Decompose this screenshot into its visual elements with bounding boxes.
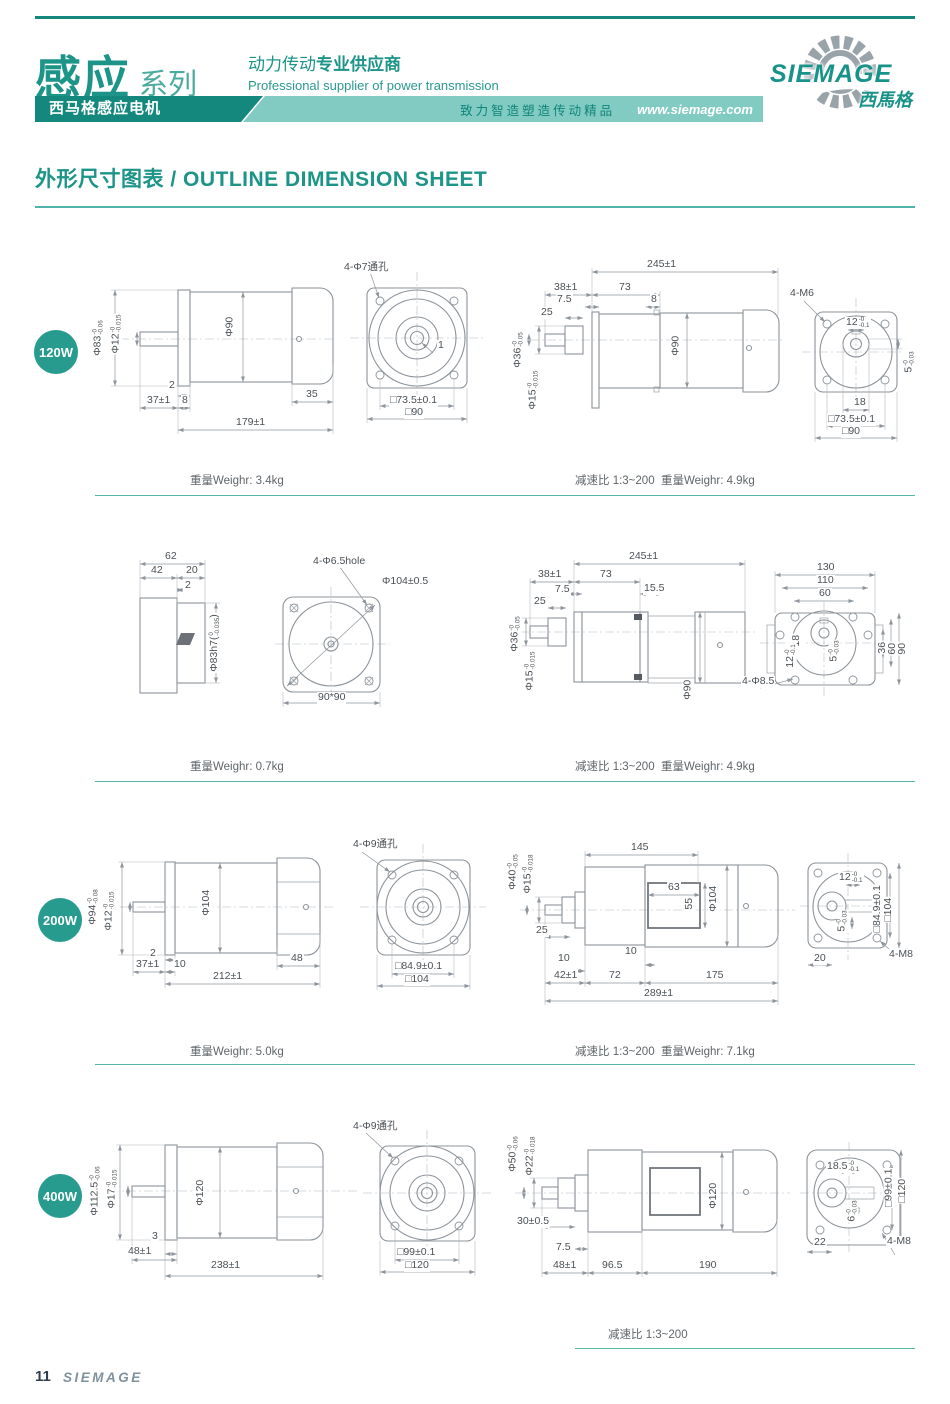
footer-brand: SIEMAGE (63, 1370, 143, 1385)
row-separator (95, 1064, 915, 1065)
ratio-caption: 减速比 1:3~200 (608, 1326, 688, 1342)
gearmotor-side-view-drawing (500, 1115, 800, 1310)
dim-label: 10 (173, 959, 187, 971)
tap-hole-label: 4-Φ8.5 (741, 676, 775, 688)
row-separator (575, 1348, 915, 1349)
dim-label: 289±1 (643, 988, 674, 1000)
thru-hole-label: 4-Φ9通孔 (352, 1121, 399, 1133)
dim-label: 37±1 (135, 959, 160, 971)
tap-hole-label: 4-M6 (789, 288, 815, 300)
dim-label: □99±0.1 (883, 1168, 895, 1208)
logo-cn: 西馬格 (858, 86, 912, 112)
power-badge-200w: 200W (38, 898, 82, 942)
product-line-bar: 西马格感应电机 (35, 96, 263, 122)
power-badge-120w: 120W (34, 330, 78, 374)
dim-label: 1 (437, 340, 445, 352)
flange-side-view-drawing (125, 548, 240, 698)
dim-label: 90*90 (317, 692, 346, 704)
dim-label: Φ112.5-0-0.06 (90, 1165, 102, 1216)
dim-label: Φ120 (708, 1182, 720, 1210)
dim-label: 175 (705, 970, 725, 982)
dim-label: 25 (535, 925, 549, 937)
dim-label: □104 (883, 897, 895, 923)
motor-front-view-drawing (340, 260, 505, 450)
spec-row-120w: 120W Φ83-0-0.06 Φ12-0-0.015 Φ90 2 37±1 8 (0, 235, 950, 500)
tagline-text: 致力智造塑造传动精品 (460, 100, 615, 119)
dim-label: 2 (168, 380, 176, 392)
dim-label: 12-0-0.1 (785, 643, 797, 669)
dim-label: Φ12-0-0.015 (103, 891, 115, 932)
company-logo: SIEMAGE 西馬格 (768, 28, 938, 120)
thru-hole-label: 4-Φ9通孔 (352, 839, 399, 851)
dim-label: 12-0-0.1 (838, 872, 864, 884)
dim-label: Φ104 (708, 885, 720, 913)
dim-label: □90 (841, 426, 861, 438)
row-separator (95, 495, 915, 496)
dim-label: Φ120 (195, 1179, 207, 1207)
dim-label: 38±1 (553, 282, 578, 294)
dim-label: 10 (557, 953, 571, 965)
dim-label: Φ15-0-0.018 (522, 854, 534, 895)
header-rule (35, 16, 915, 19)
dim-label: □84.9±0.1 (394, 961, 443, 973)
ratio-weight-caption: 减速比 1:3~200 重量Weighr: 4.9kg (575, 758, 755, 774)
dim-label: □104 (404, 974, 430, 986)
page-title: 外形尺寸图表 / OUTLINE DIMENSION SHEET (35, 163, 487, 193)
dim-label: 7.5 (556, 294, 573, 306)
spec-row-400w: 400W Φ112.5-0-0.06 Φ17-0-0.015 Φ120 3 48… (0, 1070, 950, 1360)
dim-label: Φ15-0-0.015 (527, 370, 539, 411)
dim-label: 38±1 (537, 569, 562, 581)
dim-label: 2 (184, 580, 192, 592)
row-separator (95, 781, 915, 782)
dim-label: 5-0-0.03 (904, 350, 916, 373)
dim-label: 96.5 (601, 1260, 623, 1272)
dim-label: 42 (150, 565, 164, 577)
gearhead-front-view-drawing (755, 552, 950, 712)
slogan-cn-bold: 专业供应商 (316, 55, 401, 74)
dim-label: 7.5 (555, 1242, 572, 1254)
dim-label: 8 (650, 294, 658, 306)
dim-label: 5-0-0.03 (829, 639, 841, 662)
dim-label: 35 (305, 389, 319, 401)
dim-label: Φ90 (682, 679, 694, 701)
dim-label: Φ90 (670, 335, 682, 357)
tagline-bar: 致力智造塑造传动精品 www.siemage.com (243, 96, 763, 122)
slogan-en: Professional supplier of power transmiss… (248, 78, 499, 93)
dim-label: 60 (818, 588, 832, 600)
dim-label: 20 (185, 565, 199, 577)
slogan-cn: 动力传动 (248, 55, 316, 74)
weight-caption: 重量Weighr: 0.7kg (190, 758, 284, 774)
dim-label: □90 (404, 407, 424, 419)
tap-hole-label: 4-M8 (886, 1236, 912, 1248)
corner-hole-icon (290, 677, 298, 685)
dim-label: Φ40-0-0.05 (508, 853, 520, 890)
dim-label: 7.5 (554, 584, 571, 596)
header-slogan: 动力传动专业供应商 Professional supplier of power… (248, 50, 499, 93)
dim-label: 130 (816, 562, 836, 574)
dim-label: □120 (404, 1260, 430, 1272)
dim-label: 25 (533, 596, 547, 608)
dim-label: 90 (897, 642, 909, 656)
thru-hole-label: 4-Φ7通孔 (343, 262, 390, 274)
dim-label: 18 (853, 397, 867, 409)
dim-label: 8 (181, 395, 189, 407)
catalog-page: 感应系列 动力传动专业供应商 Professional supplier of … (0, 0, 950, 1404)
motor-side-view-drawing (95, 265, 340, 440)
dim-label: 62 (164, 551, 178, 563)
power-badge-400w: 400W (38, 1174, 82, 1218)
dim-label: Φ83-0-0.06 (93, 319, 105, 356)
dim-label: Φ50-0-0.06 (508, 1135, 520, 1172)
dim-label: 12-0-0.1 (845, 317, 871, 329)
corner-hole-icon (365, 677, 373, 685)
dim-label: □99±0.1 (396, 1247, 436, 1259)
ratio-weight-caption: 减速比 1:3~200 重量Weighr: 4.9kg (575, 472, 755, 488)
dim-label: Φ36-0-0.05 (513, 331, 525, 368)
gearhead-front-view-drawing (800, 1140, 950, 1285)
dim-label: 73 (599, 569, 613, 581)
website-link[interactable]: www.siemage.com (637, 102, 753, 117)
dim-label: 6-0-0.03 (847, 1199, 859, 1222)
weight-caption: 重量Weighr: 5.0kg (190, 1043, 284, 1059)
dim-label: 212±1 (212, 971, 243, 983)
dim-label: 18.5-0-0.1 (826, 1161, 860, 1173)
dim-label: Φ94-0-0.08 (88, 888, 100, 925)
dim-label: 10 (624, 946, 638, 958)
dim-label: □73.5±0.1 (827, 414, 876, 426)
dim-label: Φ104±0.5 (381, 576, 429, 588)
title-rule (35, 206, 915, 208)
corner-hole-icon (290, 604, 298, 612)
dim-label: 179±1 (235, 417, 266, 429)
dim-label: 42±1 (553, 970, 578, 982)
dim-label: Φ17-0-0.015 (106, 1169, 118, 1210)
dim-label: 5-0-0.03 (837, 909, 849, 932)
tap-hole-label: 4-M8 (888, 949, 914, 961)
dim-label: Φ15-0-0.015 (524, 651, 536, 692)
dim-label: 145 (630, 842, 650, 854)
thru-hole-label: 4-Φ6.5hole (312, 556, 366, 568)
dim-label: Φ36-0-0.05 (510, 615, 522, 652)
dim-label: Φ83h7(0-0.035) (209, 613, 221, 673)
dim-label: 245±1 (628, 551, 659, 563)
dim-label: 55 (684, 897, 696, 911)
dim-label: 63 (667, 882, 681, 894)
dim-label: 110 (816, 575, 835, 587)
dim-label: Φ22-0-0.018 (524, 1136, 536, 1177)
spec-row-flange: 62 42 20 2 Φ83h7(0-0.035) 4-Φ6.5hole Φ10… (0, 500, 950, 790)
dim-label: 190 (698, 1260, 718, 1272)
dim-label: 25 (540, 307, 554, 319)
weight-caption: 重量Weighr: 3.4kg (190, 472, 284, 488)
dim-label: 22 (813, 1237, 827, 1249)
dim-label: 72 (608, 970, 622, 982)
dim-label: 37±1 (146, 395, 171, 407)
dim-label: □120 (897, 1178, 909, 1204)
dim-label: 48 (290, 953, 304, 965)
dim-label: Φ12-0-0.015 (110, 314, 122, 355)
flange-front-view-drawing (275, 545, 455, 730)
dim-label: 30±0.5 (516, 1216, 550, 1228)
dim-label: 48±1 (552, 1260, 577, 1272)
ratio-weight-caption: 减速比 1:3~200 重量Weighr: 7.1kg (575, 1043, 755, 1059)
dim-label: 73 (618, 282, 632, 294)
dim-label: 15.5 (643, 583, 665, 595)
dim-label: 238±1 (210, 1260, 241, 1272)
dim-label: 3 (151, 1231, 159, 1243)
dim-label: □73.5±0.1 (389, 395, 438, 407)
page-number: 11 (35, 1368, 51, 1385)
dim-label: Φ90 (224, 316, 236, 338)
dim-label: 245±1 (646, 259, 677, 271)
spec-row-200w: 200W Φ94-0-0.08 Φ12-0-0.015 Φ104 2 37± (0, 790, 950, 1070)
dim-label: 20 (813, 953, 827, 965)
logo-wordmark: SIEMAGE (770, 60, 892, 89)
dim-label: 48±1 (127, 1246, 152, 1258)
dim-label: Φ104 (201, 889, 213, 917)
